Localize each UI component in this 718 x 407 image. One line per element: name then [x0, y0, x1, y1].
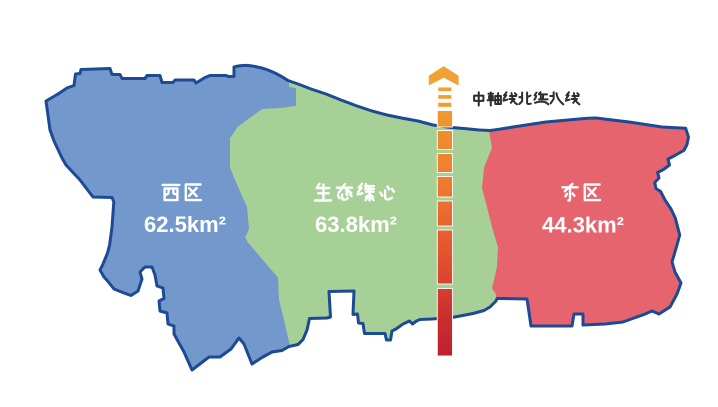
svg-text:63.8km²: 63.8km²	[315, 212, 397, 237]
svg-text:44.3km²: 44.3km²	[542, 213, 624, 238]
svg-text:62.5km²: 62.5km²	[144, 212, 226, 237]
